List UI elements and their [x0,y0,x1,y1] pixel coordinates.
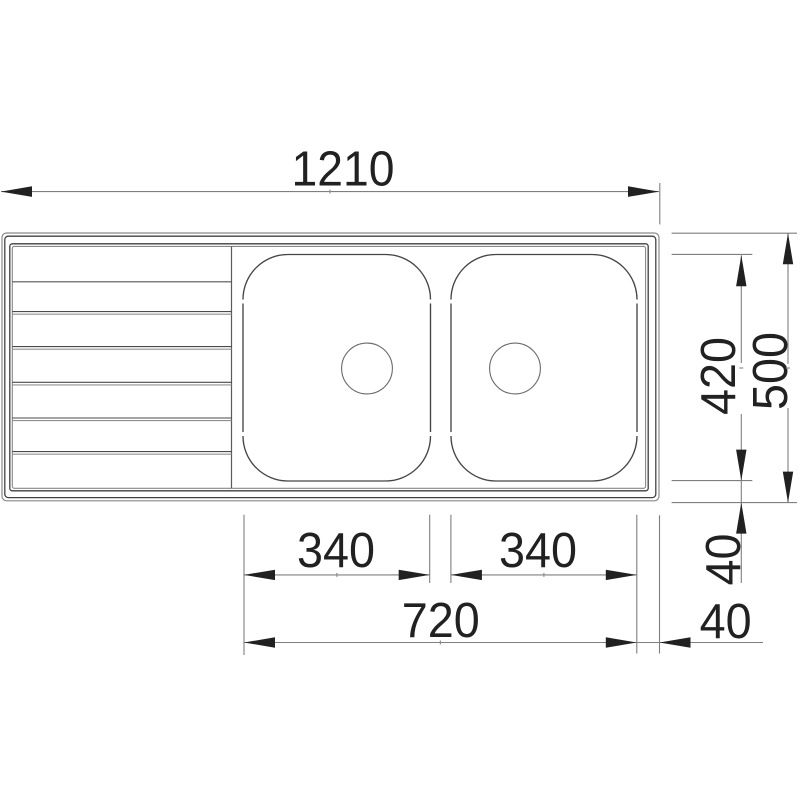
svg-text:500: 500 [743,332,798,410]
svg-text:340: 340 [499,523,577,578]
svg-text:340: 340 [297,523,375,578]
svg-text:40: 40 [696,534,751,586]
svg-text:40: 40 [700,594,752,649]
svg-text:720: 720 [402,593,480,648]
svg-text:1210: 1210 [292,142,395,197]
svg-text:420: 420 [691,337,746,415]
